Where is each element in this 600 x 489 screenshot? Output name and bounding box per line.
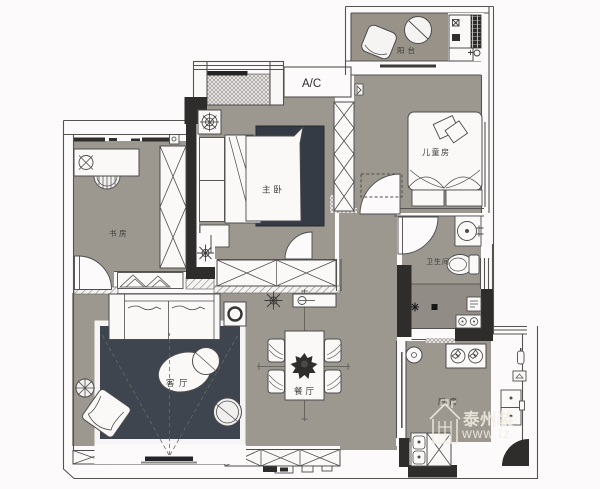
svg-text:www.tz: www.tz bbox=[461, 426, 511, 441]
svg-text:卫生间: 卫生间 bbox=[426, 257, 450, 266]
svg-text:客厅: 客厅 bbox=[166, 378, 192, 388]
svg-text:书房: 书房 bbox=[109, 228, 129, 238]
svg-text:A/C: A/C bbox=[302, 78, 321, 90]
svg-text:餐厅: 餐厅 bbox=[294, 386, 317, 396]
svg-text:阳台: 阳台 bbox=[397, 45, 418, 55]
svg-text:主卧: 主卧 bbox=[262, 185, 285, 195]
svg-text:儿童房: 儿童房 bbox=[422, 147, 451, 157]
